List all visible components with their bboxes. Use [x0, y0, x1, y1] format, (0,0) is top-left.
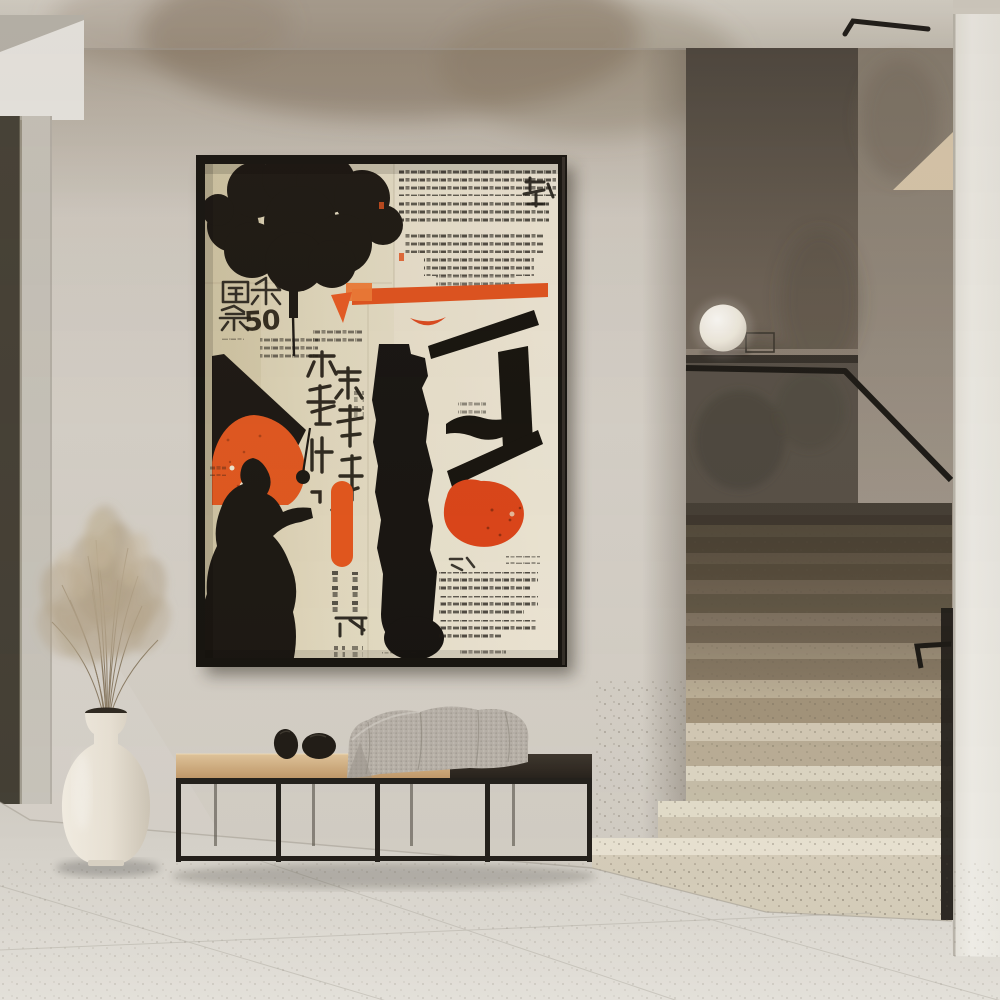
ambient-vignette: [0, 0, 1000, 1000]
interior-scene: 50: [0, 0, 1000, 1000]
scene-canvas: 50: [0, 0, 1000, 1000]
